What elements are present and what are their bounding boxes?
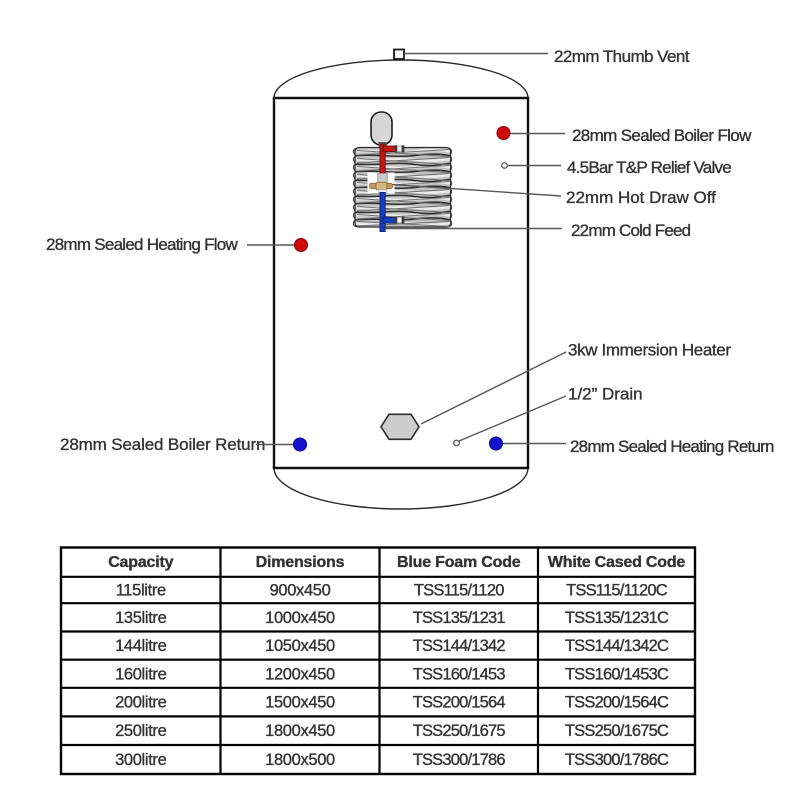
svg-text:3kw Immersion Heater: 3kw Immersion Heater: [568, 341, 731, 360]
svg-text:Blue Foam Code: Blue Foam Code: [397, 554, 521, 571]
svg-text:1/2” Drain: 1/2” Drain: [568, 385, 643, 404]
svg-text:1500x450: 1500x450: [265, 694, 335, 712]
svg-text:28mm Sealed Boiler Flow: 28mm Sealed Boiler Flow: [572, 126, 752, 145]
svg-text:28mm Sealed Heating Return: 28mm Sealed Heating Return: [570, 437, 774, 456]
svg-text:900x450: 900x450: [270, 582, 331, 600]
svg-text:TSS144/1342: TSS144/1342: [413, 637, 506, 655]
svg-text:135litre: 135litre: [115, 609, 166, 627]
svg-text:TSS115/1120C: TSS115/1120C: [566, 582, 668, 600]
svg-text:300litre: 300litre: [115, 751, 166, 769]
svg-text:144litre: 144litre: [115, 637, 166, 655]
svg-text:TSS300/1786: TSS300/1786: [413, 751, 506, 769]
svg-text:TSS160/1453C: TSS160/1453C: [565, 665, 669, 683]
svg-text:TSS144/1342C: TSS144/1342C: [565, 637, 669, 655]
svg-text:1800x500: 1800x500: [265, 751, 335, 769]
svg-text:TSS135/1231: TSS135/1231: [413, 609, 506, 627]
svg-text:1200x450: 1200x450: [265, 665, 335, 683]
svg-text:1050x450: 1050x450: [265, 637, 335, 655]
svg-text:250litre: 250litre: [115, 722, 166, 740]
svg-text:TSS115/1120: TSS115/1120: [414, 582, 504, 600]
svg-text:Dimensions: Dimensions: [256, 554, 345, 571]
svg-text:28mm Sealed Boiler Return: 28mm Sealed Boiler Return: [60, 435, 265, 454]
svg-text:TSS250/1675C: TSS250/1675C: [565, 722, 669, 740]
svg-text:28mm Sealed Heating Flow: 28mm Sealed Heating Flow: [46, 235, 239, 254]
svg-text:TSS200/1564: TSS200/1564: [413, 694, 506, 712]
svg-text:TSS160/1453: TSS160/1453: [413, 665, 506, 683]
svg-text:Capacity: Capacity: [108, 554, 173, 571]
svg-text:22mm Hot Draw Off: 22mm Hot Draw Off: [566, 188, 716, 207]
svg-text:TSS250/1675: TSS250/1675: [413, 722, 506, 740]
svg-text:TSS300/1786C: TSS300/1786C: [565, 751, 669, 769]
svg-text:1800x450: 1800x450: [265, 722, 335, 740]
svg-text:TSS200/1564C: TSS200/1564C: [565, 694, 669, 712]
svg-text:1000x450: 1000x450: [265, 609, 335, 627]
svg-text:115litre: 115litre: [116, 582, 166, 600]
svg-text:4.5Bar T&P Relief Valve: 4.5Bar T&P Relief Valve: [567, 158, 731, 177]
svg-text:200litre: 200litre: [115, 694, 166, 712]
svg-text:22mm Cold Feed: 22mm Cold Feed: [571, 221, 691, 240]
svg-text:TSS135/1231C: TSS135/1231C: [565, 609, 669, 627]
svg-text:White Cased Code: White Cased Code: [548, 554, 686, 571]
svg-text:22mm Thumb Vent: 22mm Thumb Vent: [554, 47, 690, 66]
svg-text:160litre: 160litre: [115, 665, 166, 683]
